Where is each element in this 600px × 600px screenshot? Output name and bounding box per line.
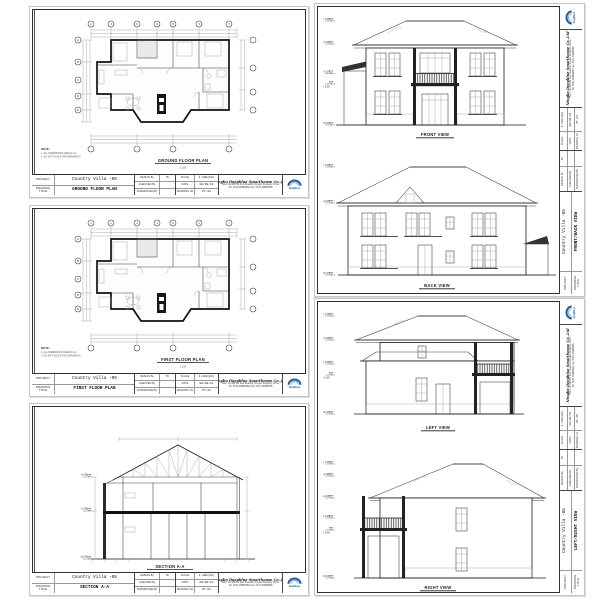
svg-text:±0.00: ±0.00 — [323, 122, 330, 125]
scale-label: SCALE — [560, 430, 567, 449]
company-block: Ningbo Deepblue Smarthouse Co.,Ltd Add: … — [219, 374, 283, 394]
balcony-column — [474, 343, 477, 415]
svg-text:+3.38: +3.38 — [323, 361, 330, 364]
checked-by-value — [160, 381, 175, 387]
design-by-label: DESIGN By — [135, 374, 160, 380]
svg-text:±0.00: ±0.00 — [323, 411, 330, 414]
project-value: Country Villa -05 — [560, 491, 571, 570]
checked-by-value — [568, 151, 575, 166]
supervised-by-value — [160, 587, 175, 593]
drawing-no-value: ZY-03 — [195, 587, 218, 593]
logo-cell: DeepBLue — [283, 573, 306, 593]
logo-text: DeepBLue — [574, 12, 576, 23]
deepblue-logo-icon — [565, 305, 574, 320]
supervised-by-value — [575, 151, 582, 166]
project-value: Country Villa -05 — [55, 175, 134, 185]
company-block: Ningbo Deepblue Smarthouse Co.,Ltd Add: … — [560, 324, 582, 406]
supervised-by-value — [160, 189, 175, 195]
title-block: PROJECTCountry Villa -05 DRAWING TITLEGR… — [32, 174, 306, 195]
supervised-by-label: SUPERVISED By — [135, 189, 160, 195]
sheet-front-back-view: +7.38 +6.08 +3.38 +3.08 ±0.00 FRONT VIEW — [314, 3, 585, 297]
logo-cell: DeepBLue — [560, 301, 582, 324]
plan-scale-note: 1:100 — [180, 365, 187, 369]
balcony-balustrade — [416, 74, 454, 84]
garage-roof — [523, 236, 549, 244]
section-caption: SECTION A-A — [155, 564, 184, 569]
svg-text:+3.08: +3.08 — [323, 532, 330, 535]
balcony-column — [402, 496, 405, 578]
balcony-balustrade — [477, 364, 510, 373]
balcony-column — [510, 343, 513, 415]
garage-roof — [342, 62, 366, 73]
company-phone: Tel: 0574-28886666 Fax: 0574-28886688 — [573, 47, 576, 91]
project-value: Country Villa -05 — [55, 573, 134, 583]
drawing-no-value: ZY-01 — [195, 189, 218, 195]
design-by-label: DESIGN By — [135, 573, 160, 579]
design-by-value: Th — [160, 374, 175, 380]
checked-by-label: CHECKED By — [135, 381, 160, 387]
svg-text:+6.08: +6.08 — [81, 474, 88, 477]
drawing-no-label: DRAWING No — [176, 189, 195, 195]
scale-value: 1:100(A3) — [195, 175, 218, 181]
company-phone: Tel: 0574-28886666 Fax: 0574-28886688 — [229, 386, 273, 389]
drawing-no-label: DRAWING No — [575, 430, 582, 449]
sheet-section: +6.08 +3.08 ±0.00 SECTION A-A PROJECTCou… — [29, 403, 309, 596]
back-elevation: +7.38 +6.08 ±0.00 BACK VIEW — [323, 164, 556, 289]
deepblue-logo-icon — [287, 577, 302, 586]
company-phone: Tel: 0574-28886666 Fax: 0574-28886688 — [229, 187, 273, 190]
plan-caption: FIRST FLOOR PLAN — [161, 357, 205, 362]
front-level-marks: +7.38 +6.08 +3.38 +3.08 ±0.00 — [323, 18, 335, 125]
drawing-title-value: LEFT/RIGHT VIEW — [572, 491, 583, 570]
scale-value: 1:100(A3) — [195, 573, 218, 579]
deepblue-logo-icon — [565, 10, 574, 25]
checked-by-value — [568, 450, 575, 465]
project-value: Country Villa -05 — [560, 192, 571, 271]
balcony-column — [362, 496, 365, 578]
scale-value: 1:100(A3) — [560, 108, 567, 131]
sheet-left-right-view: +7.38 +6.08 +3.38 +3.08 ±0.00 LEFT VIEW — [314, 298, 585, 596]
garage — [344, 71, 366, 125]
right-level-marks: +7.38 +6.98 +6.08 +3.38 +3.08 ±0.00 — [323, 461, 335, 578]
drawing-no-value: ZY-05 — [575, 407, 582, 430]
drawing-title-label: DRAWING TITLE — [32, 584, 55, 594]
design-by-label: DESIGN By — [135, 175, 160, 181]
design-by-value: Th — [560, 450, 567, 465]
svg-text:+3.38: +3.38 — [323, 70, 330, 73]
title-block: PROJECTCountry Villa -05 DRAWING TITLESE… — [32, 572, 306, 593]
balcony-column — [413, 48, 416, 125]
design-by-value: Th — [160, 175, 175, 181]
sheet-ground-floor-plan: GROUND FLOOR PLAN 1:100 PROJECTCountry V… — [29, 6, 309, 198]
drawing-title-value: FIRST FLOOR PLAN — [55, 385, 134, 395]
supervised-by-value — [575, 450, 582, 465]
checked-by-label: CHECKED By — [135, 182, 160, 188]
project-label: PROJECT — [560, 271, 571, 294]
plan-scale-note: 1:100 — [180, 166, 187, 170]
deepblue-logo-icon — [287, 378, 302, 387]
front-back-elevations-drawing: +7.38 +6.08 +3.38 +3.08 ±0.00 FRONT VIEW — [318, 7, 559, 295]
ground-floor-plan-drawing: GROUND FLOOR PLAN 1:100 — [33, 10, 305, 174]
company-block: Ningbo Deepblue Smarthouse Co.,Ltd Add: … — [560, 29, 582, 107]
supervised-by-label: SUPERVISED By — [135, 388, 160, 394]
date-label: DATE — [568, 131, 575, 150]
scale-label: SCALE — [176, 573, 195, 579]
logo-text: DeepBLue — [289, 586, 300, 588]
deepblue-logo-icon — [287, 179, 302, 188]
svg-text:±0.00: ±0.00 — [323, 575, 330, 578]
drawing-no-value: ZY-04 — [575, 108, 582, 131]
supervised-by-label: SUPERVISED By — [135, 587, 160, 593]
plan-caption: GROUND FLOOR PLAN — [158, 158, 208, 163]
drawing-title-value: FRONT/BACK VIEW — [572, 192, 583, 271]
logo-cell: DeepBLue — [283, 374, 306, 394]
checked-by-label: CHECKED By — [568, 465, 575, 490]
svg-text:+7.38: +7.38 — [323, 313, 330, 316]
svg-text:+3.08: +3.08 — [81, 508, 88, 511]
date-value: 08/08/11 — [568, 108, 575, 131]
back-level-marks: +7.38 +6.08 ±0.00 — [323, 164, 335, 275]
company-block: Ningbo Deepblue Smarthouse Co.,Ltd Add: … — [219, 175, 283, 195]
checked-by-value — [160, 580, 175, 586]
balcony-column — [454, 48, 457, 125]
drawing-title-label: DRAWING TITLE — [32, 385, 55, 395]
left-view-caption: LEFT VIEW — [426, 425, 450, 430]
date-value: 08/08/11 — [568, 407, 575, 430]
project-label: PROJECT — [32, 573, 55, 583]
drawing-title-value: SECTION A-A — [55, 584, 134, 594]
design-by-label: DESIGN By — [560, 465, 567, 490]
svg-text:+7.38: +7.38 — [323, 461, 330, 464]
drawing-title-label: DRAWING TITLE — [32, 186, 55, 196]
balcony-slab — [360, 528, 407, 531]
design-by-value: Th — [560, 151, 567, 166]
left-level-marks: +7.38 +6.08 +3.38 +3.08 ±0.00 — [323, 313, 335, 414]
checked-by-label: CHECKED By — [135, 580, 160, 586]
svg-text:+6.08: +6.08 — [323, 41, 330, 44]
scale-label: SCALE — [176, 175, 195, 181]
scale-value: 1:100(A3) — [560, 407, 567, 430]
first-floor-plan-drawing: FIRST FLOOR PLAN 1:100 — [33, 209, 305, 373]
project-label: PROJECT — [32, 374, 55, 384]
right-view-caption: RIGHT VIEW — [425, 585, 452, 590]
svg-text:+3.38: +3.38 — [323, 515, 330, 518]
svg-text:+3.08: +3.08 — [323, 377, 330, 380]
checked-by-label: CHECKED By — [568, 166, 575, 191]
company-phone: Tel: 0574-28886666 Fax: 0574-28886688 — [229, 585, 273, 588]
balcony-slab — [472, 373, 515, 376]
logo-cell: DeepBLue — [283, 175, 306, 195]
project-label: PROJECT — [560, 570, 571, 593]
svg-text:+7.38: +7.38 — [323, 18, 330, 21]
checked-by-value — [160, 182, 175, 188]
right-elevation: +7.38 +6.98 +6.08 +3.38 +3.08 ±0.00 RIGH… — [323, 461, 546, 591]
supervised-by-label: SUPERVISED By — [575, 465, 582, 490]
company-block: Ningbo Deepblue Smarthouse Co.,Ltd Add: … — [219, 573, 283, 593]
supervised-by-value — [160, 388, 175, 394]
back-view-caption: BACK VIEW — [424, 283, 450, 288]
svg-text:+6.08: +6.08 — [323, 337, 330, 340]
date-value: 08/08/11 — [195, 182, 218, 188]
date-label: DATE — [176, 182, 195, 188]
drawing-no-value: ZY-02 — [195, 388, 218, 394]
company-phone: Tel: 0574-28886666 Fax: 0574-28886688 — [573, 344, 576, 388]
drawing-no-label: DRAWING No — [176, 388, 195, 394]
title-block-vertical: PROJECTCountry Villa -05 DRAWING TITLEFR… — [559, 6, 582, 294]
date-value: 08/08/11 — [195, 580, 218, 586]
logo-text: DeepBLue — [289, 188, 300, 190]
project-label: PROJECT — [32, 175, 55, 185]
scale-value: 1:100(A3) — [195, 374, 218, 380]
section-walls — [91, 477, 255, 562]
front-elevation: +7.38 +6.08 +3.38 +3.08 ±0.00 FRONT VIEW — [323, 18, 526, 138]
svg-text:±0.00: ±0.00 — [323, 272, 330, 275]
date-value: 08/08/11 — [195, 381, 218, 387]
balcony-slab — [411, 83, 459, 86]
project-value: Country Villa -05 — [55, 374, 134, 384]
drawing-sheets-page: { "page": {"background": "#ffffff"}, "pr… — [0, 0, 600, 600]
date-label: DATE — [176, 580, 195, 586]
garage — [526, 244, 548, 275]
balcony-balustrade — [365, 518, 402, 528]
scale-label: SCALE — [560, 131, 567, 150]
logo-text: DeepBLue — [574, 307, 576, 318]
design-by-value: Th — [160, 573, 175, 579]
svg-text:+3.08: +3.08 — [323, 86, 330, 89]
scale-label: SCALE — [176, 374, 195, 380]
date-label: DATE — [568, 430, 575, 449]
roof-truss — [107, 445, 243, 483]
date-label: DATE — [176, 381, 195, 387]
supervised-by-label: SUPERVISED By — [575, 166, 582, 191]
sheet-first-floor-plan: FIRST FLOOR PLAN 1:100 PROJECTCountry Vi… — [29, 205, 309, 397]
svg-text:+6.08: +6.08 — [323, 200, 330, 203]
svg-text:+7.38: +7.38 — [323, 164, 330, 167]
drawing-title-value: GROUND FLOOR PLAN — [55, 186, 134, 196]
title-block: PROJECTCountry Villa -05 DRAWING TITLEFI… — [32, 373, 306, 394]
left-elevation: +7.38 +6.08 +3.38 +3.08 ±0.00 LEFT VIEW — [323, 313, 524, 431]
title-block-vertical: PROJECTCountry Villa -05 DRAWING TITLELE… — [559, 301, 582, 593]
logo-text: DeepBLue — [289, 387, 300, 389]
left-right-elevations-drawing: +7.38 +6.08 +3.38 +3.08 ±0.00 LEFT VIEW — [318, 302, 559, 594]
design-by-label: DESIGN By — [560, 166, 567, 191]
drawing-title-label: DRAWING TITLE — [572, 271, 583, 294]
drawing-no-label: DRAWING No — [176, 587, 195, 593]
svg-text:±0.00: ±0.00 — [81, 556, 88, 559]
drawing-no-label: DRAWING No — [575, 131, 582, 150]
front-view-caption: FRONT VIEW — [421, 132, 449, 137]
svg-text:+6.98: +6.98 — [323, 473, 330, 476]
logo-cell: DeepBLue — [560, 6, 582, 29]
drawing-title-label: DRAWING TITLE — [572, 570, 583, 593]
gable-vent — [396, 187, 424, 203]
svg-text:+6.08: +6.08 — [323, 495, 330, 498]
section-drawing: +6.08 +3.08 ±0.00 SECTION A-A — [33, 407, 305, 572]
